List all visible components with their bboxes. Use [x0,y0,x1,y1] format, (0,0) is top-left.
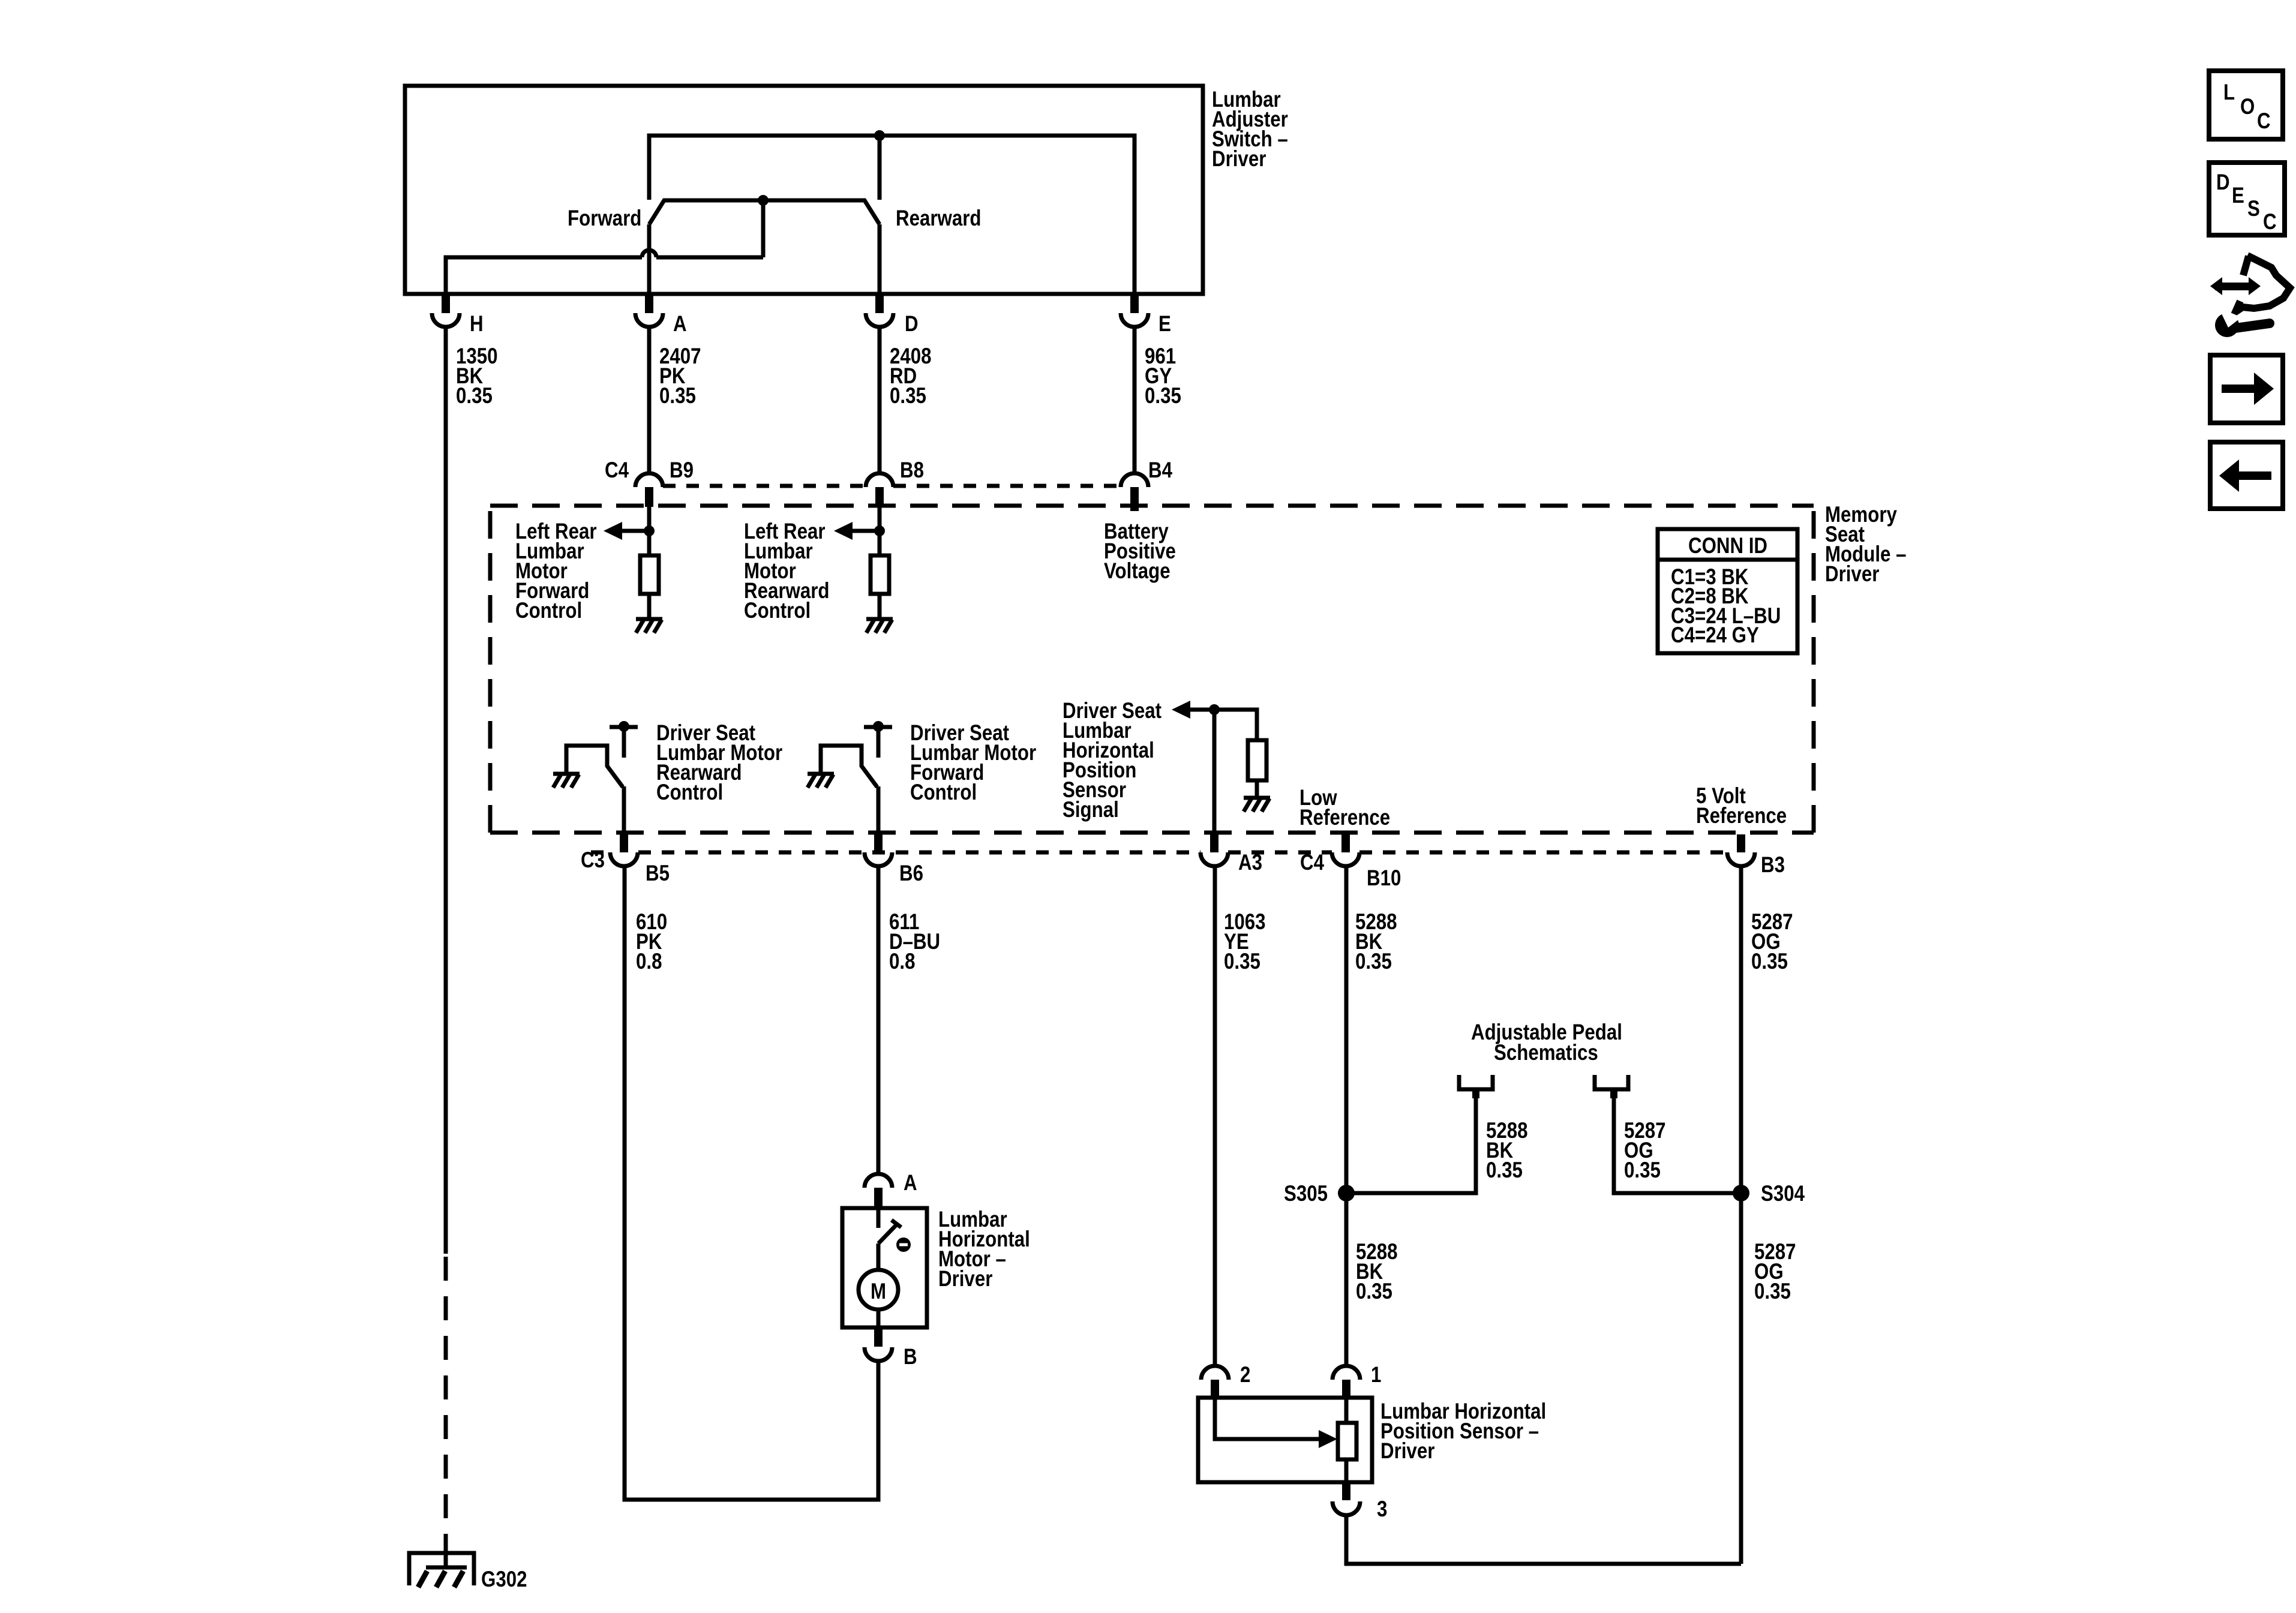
svg-text:L: L [2223,80,2235,105]
svg-text:B: B [904,1345,917,1369]
svg-text:O: O [2240,95,2255,119]
svg-text:1: 1 [1371,1363,1381,1387]
svg-text:0.8: 0.8 [636,950,662,974]
svg-text:Signal: Signal [1063,798,1119,822]
svg-text:0.35: 0.35 [1486,1158,1523,1183]
svg-text:Driver: Driver [1212,147,1266,172]
svg-text:Driver: Driver [1825,562,1879,587]
svg-text:E: E [2232,184,2244,208]
svg-text:Control: Control [744,599,811,623]
svg-text:C: C [2257,109,2271,134]
svg-text:3: 3 [1377,1497,1387,1522]
svg-text:0.35: 0.35 [1754,1279,1791,1304]
svg-text:0.35: 0.35 [1356,1279,1392,1304]
svg-text:Reference: Reference [1299,806,1390,830]
svg-text:Control: Control [656,780,723,805]
svg-text:0.8: 0.8 [889,950,915,974]
svg-text:A: A [673,312,687,337]
svg-text:C4: C4 [605,458,629,483]
svg-text:0.35: 0.35 [659,384,696,408]
svg-text:C3: C3 [581,848,605,873]
svg-text:C4=24 GY: C4=24 GY [1671,623,1759,648]
svg-text:Driver: Driver [1380,1439,1434,1464]
svg-text:B6: B6 [899,861,923,886]
svg-text:M: M [871,1279,886,1304]
svg-text:0.35: 0.35 [456,384,493,408]
svg-text:Rearward: Rearward [896,206,981,231]
svg-text:S304: S304 [1761,1182,1805,1206]
svg-text:S: S [2247,197,2260,221]
svg-text:Schematics: Schematics [1494,1041,1598,1065]
svg-text:B5: B5 [646,861,670,886]
svg-text:0.35: 0.35 [1224,950,1260,974]
svg-text:2: 2 [1240,1363,1250,1387]
svg-text:0.35: 0.35 [1624,1158,1661,1183]
svg-text:Control: Control [515,599,582,623]
svg-text:S305: S305 [1284,1182,1328,1206]
svg-text:Driver: Driver [938,1267,992,1291]
svg-text:Control: Control [910,780,977,805]
svg-text:B4: B4 [1148,458,1172,483]
svg-text:0.35: 0.35 [1355,950,1392,974]
svg-text:B3: B3 [1761,853,1785,878]
svg-text:B10: B10 [1367,866,1401,891]
svg-text:H: H [470,312,484,337]
svg-text:0.35: 0.35 [890,384,926,408]
svg-text:B8: B8 [900,458,924,483]
svg-text:B9: B9 [670,458,694,483]
svg-text:C: C [2263,210,2277,235]
svg-text:A: A [904,1171,917,1196]
svg-text:Reference: Reference [1696,804,1787,828]
svg-text:Voltage: Voltage [1104,559,1170,584]
svg-text:D: D [905,312,919,337]
svg-text:CONN ID: CONN ID [1688,534,1767,558]
svg-text:0.35: 0.35 [1145,384,1181,408]
svg-text:E: E [1158,312,1171,337]
svg-text:G302: G302 [481,1567,527,1592]
svg-text:D: D [2216,170,2230,195]
svg-text:0.35: 0.35 [1751,950,1788,974]
svg-text:C4: C4 [1300,851,1324,875]
svg-text:Forward: Forward [568,206,641,231]
svg-text:A3: A3 [1238,851,1262,875]
